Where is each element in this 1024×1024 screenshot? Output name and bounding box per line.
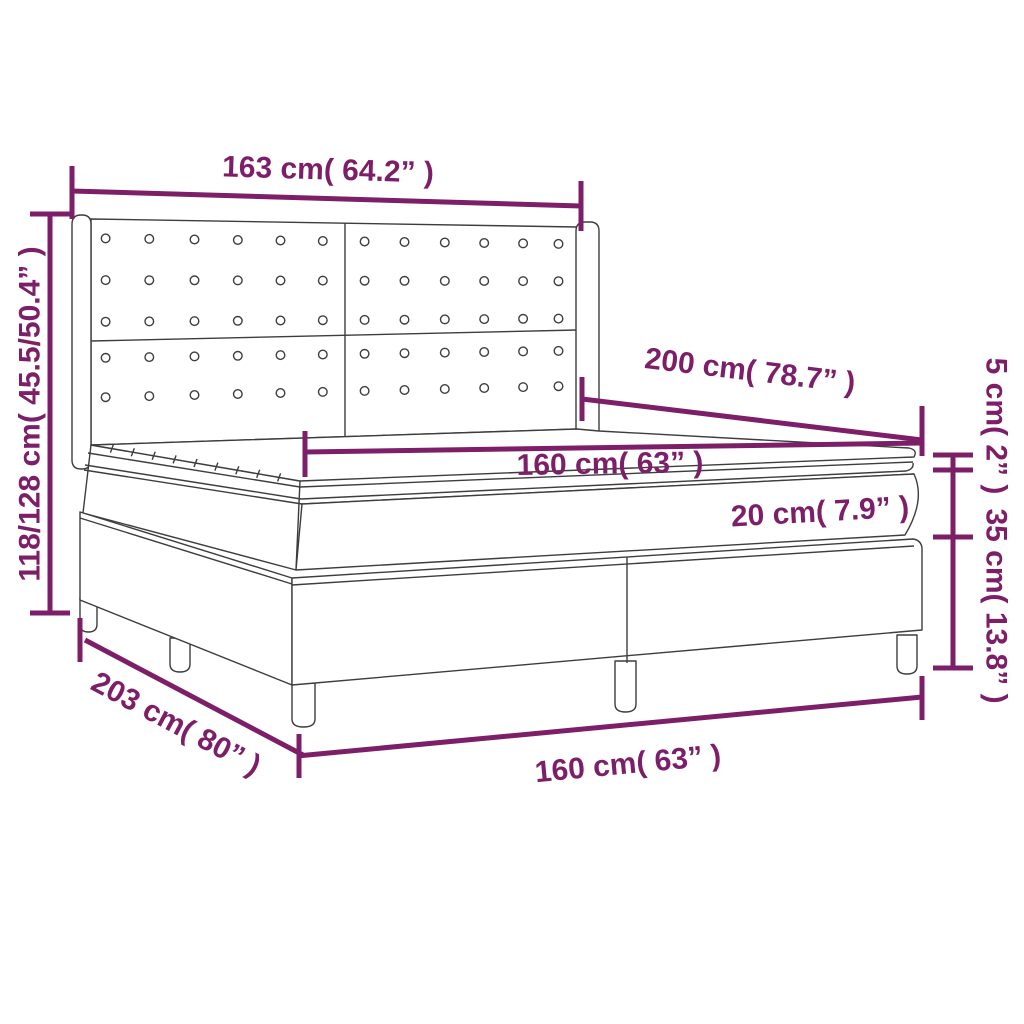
- tufting-button: [145, 392, 154, 401]
- tufting-button: [441, 385, 450, 394]
- product-dimension-diagram: 163 cm( 64.2” ) 118/128 cm( 45.5/50.4” )…: [0, 0, 1024, 1024]
- tufting-button: [400, 277, 409, 286]
- bed-leg: [292, 683, 315, 727]
- dim-line-base-width: [297, 697, 922, 756]
- tufting-button: [234, 236, 243, 245]
- dim-mattress-width-label: 160 cm( 63” ): [516, 446, 703, 482]
- tufting-button: [276, 389, 285, 398]
- tufting-button: [101, 393, 110, 402]
- tufting-button: [480, 277, 489, 286]
- tufting-button: [234, 390, 243, 399]
- tufting-button: [319, 350, 328, 359]
- dim-headboard-height-label: 118/128 cm( 45.5/50.4” ): [14, 246, 47, 581]
- tufting-button: [360, 387, 369, 396]
- dim-line-headboard-width: [72, 191, 581, 206]
- tufting-button: [480, 315, 489, 324]
- dim-topper-thickness-label: 5 cm( 2” ): [980, 358, 1013, 495]
- tufting-button: [276, 236, 285, 245]
- tufting-button: [190, 317, 199, 326]
- tufting-button: [319, 388, 328, 397]
- tufting-button: [480, 239, 489, 248]
- tufting-button: [101, 354, 110, 363]
- bed-leg: [897, 635, 917, 674]
- dim-base-height-label: 35 cm( 13.8” ): [980, 508, 1013, 703]
- tufting-button: [554, 347, 563, 356]
- tufting-button: [400, 238, 409, 247]
- tufting-button: [554, 314, 563, 323]
- tufting-button: [400, 386, 409, 395]
- tufting-button: [519, 277, 528, 286]
- tufting-button: [360, 276, 369, 285]
- tufting-button: [360, 237, 369, 246]
- tufting-button: [276, 316, 285, 325]
- tufting-button: [145, 317, 154, 326]
- tufting-button: [234, 352, 243, 361]
- tufting-button: [190, 352, 199, 361]
- tufting-button: [554, 240, 563, 249]
- tufting-button: [190, 391, 199, 400]
- dim-headboard-width-label: 163 cm( 64.2” ): [222, 150, 435, 189]
- tufting-button: [441, 348, 450, 357]
- tufting-button: [234, 317, 243, 326]
- tufting-button: [276, 276, 285, 285]
- tufting-button: [360, 316, 369, 325]
- tufting-button: [145, 353, 154, 362]
- tufting-button: [441, 315, 450, 324]
- tufting-button: [145, 235, 154, 244]
- bed-dimension-drawing: 163 cm( 64.2” ) 118/128 cm( 45.5/50.4” )…: [0, 0, 1024, 1024]
- tufting-button: [190, 235, 199, 244]
- dim-base-width-label: 160 cm( 63” ): [533, 739, 722, 789]
- tufting-button: [101, 317, 110, 326]
- bed-leg: [615, 661, 636, 712]
- tufting-button: [101, 276, 110, 285]
- tufting-button: [441, 238, 450, 247]
- tufting-button: [519, 315, 528, 324]
- tufting-button: [101, 234, 110, 243]
- tufting-button: [360, 350, 369, 359]
- tufting-button: [480, 348, 489, 357]
- tufting-button: [400, 349, 409, 358]
- tufting-button: [234, 276, 243, 285]
- tufting-button: [519, 239, 528, 248]
- tufting-button: [554, 382, 563, 391]
- tufting-button: [276, 351, 285, 360]
- tufting-button: [400, 315, 409, 324]
- dim-bed-length-label: 200 cm( 78.7” ): [643, 342, 857, 400]
- tufting-button: [519, 347, 528, 356]
- tufting-button: [319, 276, 328, 285]
- tufting-button: [441, 277, 450, 286]
- tufting-button: [190, 276, 199, 285]
- tufting-button: [319, 237, 328, 246]
- headboard-left-wing-post: [72, 215, 91, 469]
- headboard-right-wing-post: [576, 222, 599, 444]
- tufting-button: [319, 316, 328, 325]
- bed-illustration: [72, 215, 922, 727]
- tufting-button: [480, 384, 489, 393]
- tufting-button: [554, 277, 563, 286]
- tufting-button: [519, 383, 528, 392]
- tufting-button: [145, 276, 154, 285]
